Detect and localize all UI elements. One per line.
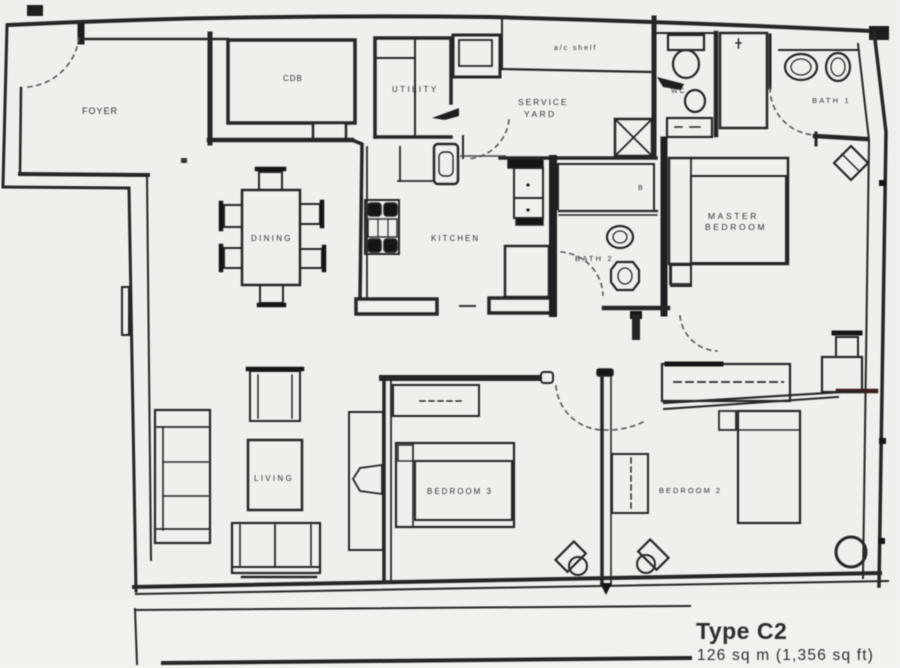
svg-text:UTILITY: UTILITY xyxy=(392,85,439,94)
svg-text:Type C2: Type C2 xyxy=(696,618,787,644)
svg-text:MASTER: MASTER xyxy=(708,211,759,221)
svg-text:a/c shelf: a/c shelf xyxy=(554,45,597,52)
svg-text:WC: WC xyxy=(671,88,686,95)
svg-text:DINING: DINING xyxy=(251,234,293,243)
svg-text:BEDROOM 2: BEDROOM 2 xyxy=(659,486,722,495)
svg-text:FOYER: FOYER xyxy=(82,106,118,116)
svg-text:BEDROOM 3: BEDROOM 3 xyxy=(427,487,493,496)
svg-text:126 sq m (1,356 sq ft): 126 sq m (1,356 sq ft) xyxy=(697,647,874,664)
svg-text:BEDROOM: BEDROOM xyxy=(705,222,767,232)
svg-text:BATH 1: BATH 1 xyxy=(812,96,851,105)
svg-text:B: B xyxy=(638,185,643,192)
svg-text:CDB: CDB xyxy=(283,74,303,83)
svg-text:KITCHEN: KITCHEN xyxy=(431,234,480,243)
svg-text:LIVING: LIVING xyxy=(254,474,294,483)
svg-text:SERVICE: SERVICE xyxy=(518,97,568,107)
svg-text:YARD: YARD xyxy=(524,109,557,119)
